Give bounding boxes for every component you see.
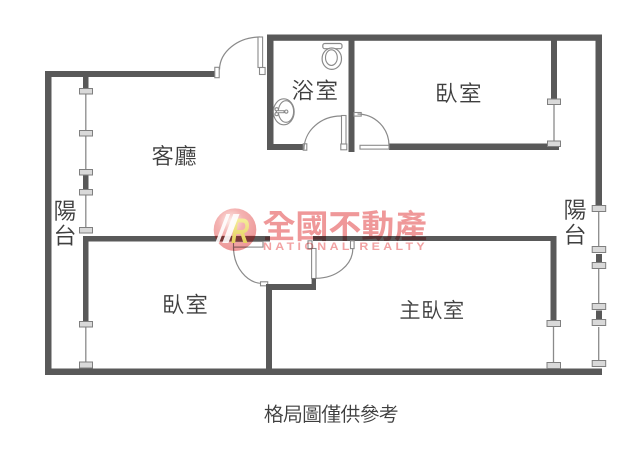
svg-text:NATIONAL REALTY: NATIONAL REALTY — [263, 241, 428, 253]
